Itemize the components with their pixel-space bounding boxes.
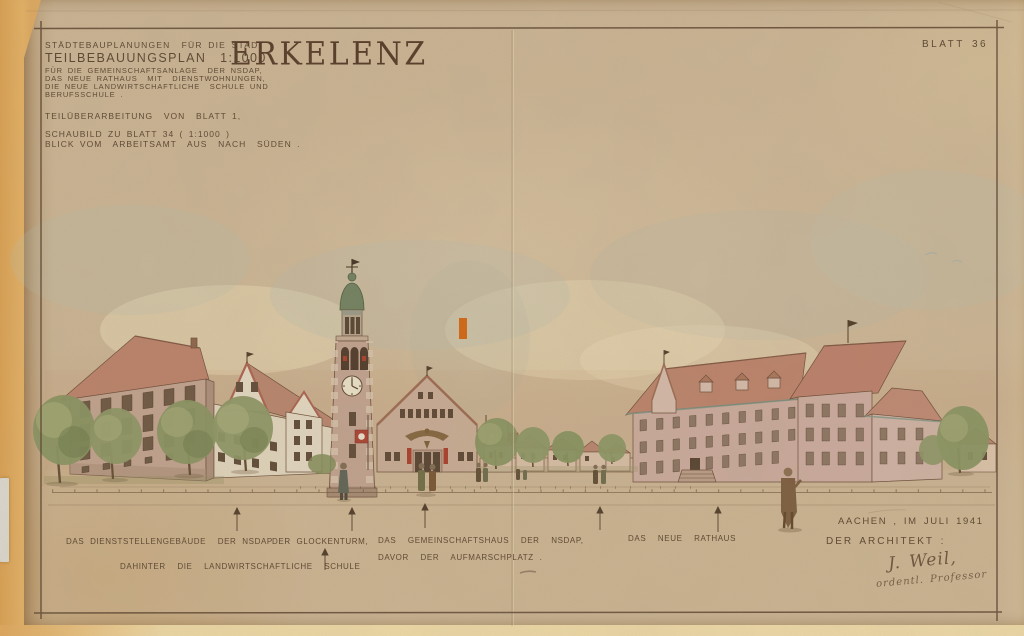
- sheet-number: BLATT 36: [922, 39, 988, 50]
- orange-marker: [459, 318, 467, 339]
- title-line2: TEILBEBAUUNGSPLAN 1:1000: [45, 51, 267, 65]
- belfry-openings: [341, 347, 368, 370]
- entrance-steps: [678, 470, 716, 482]
- caption-community-hall-1: DAS GEMEINSCHAFTSHAUS DER NSDAP,: [378, 536, 584, 545]
- caption-town-hall: DAS NEUE RATHAUS: [628, 534, 736, 543]
- caption-school: DAHINTER DIE LANDWIRTSCHAFTLICHE SCHULE: [120, 562, 360, 571]
- architect-label: DER ARCHITEKT :: [826, 536, 945, 547]
- caption-bell-tower: DER GLOCKENTURM,: [272, 537, 368, 546]
- caption-office-building: DAS DIENSTSTELLENGEBÄUDE DER NSDAP: [66, 537, 273, 546]
- revision-note: TEILÜBERARBEITUNG VON BLATT 1,: [45, 111, 241, 121]
- view-note-line1: SCHAUBILD ZU BLATT 34 ( 1:1000 ): [45, 129, 230, 139]
- title-line6: BERUFSSCHULE .: [45, 90, 123, 99]
- view-note-line2: BLICK VOM ARBEITSAMT AUS NACH SÜDEN .: [45, 139, 300, 149]
- caption-community-hall-2: DAVOR DER AUFMARSCHPLATZ .: [378, 553, 542, 562]
- place-date: AACHEN , IM JULI 1941: [838, 516, 984, 527]
- scanned-drawing-sheet: STÄDTEBAUPLANUNGEN FÜR DIE STADT ERKELEN…: [0, 0, 1024, 636]
